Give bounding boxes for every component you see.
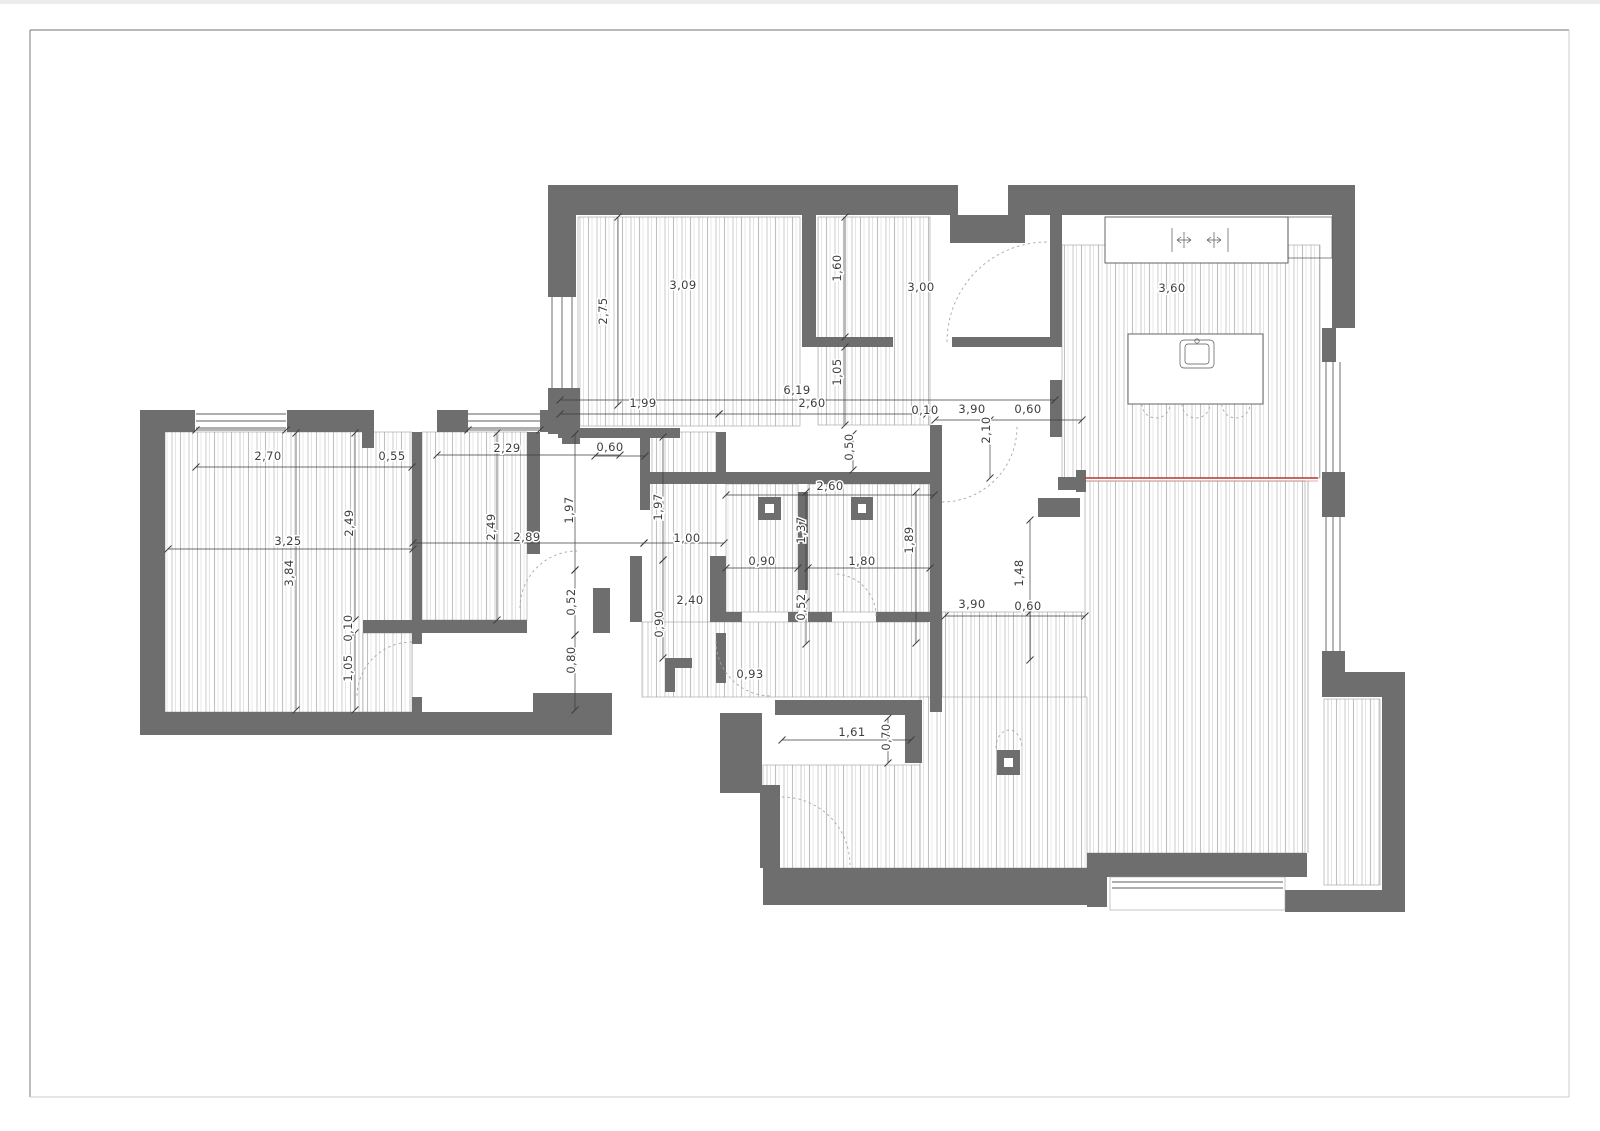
balcony-strip <box>1324 699 1380 885</box>
dimension-label: 3,90 <box>958 402 985 416</box>
dimension-label: 0,70 <box>879 723 893 750</box>
room-mid-left <box>422 432 527 620</box>
dimension-label: 3,09 <box>669 278 696 292</box>
dimension-label: 2,29 <box>493 441 520 455</box>
dimension-label: 1,37 <box>794 516 808 543</box>
dimension-label: 0,55 <box>378 449 405 463</box>
dimension-label: 0,60 <box>1014 402 1041 416</box>
dimension-label: 0,52 <box>564 588 578 615</box>
dimension-label: 1,05 <box>341 654 355 681</box>
dimension-label: 3,00 <box>907 280 934 294</box>
dimension-label: 2,49 <box>342 509 356 536</box>
window-right-lower <box>1326 517 1340 651</box>
dimension-label: 1,60 <box>830 254 844 281</box>
floor-hatch-layer <box>165 217 1380 885</box>
dimension-label: 0,50 <box>842 433 856 460</box>
hall-bottom <box>920 697 1087 868</box>
room-living <box>1085 481 1305 853</box>
dimension-label: 6,19 <box>783 383 810 397</box>
dimension-label: 0,90 <box>748 554 775 568</box>
dimension-label: 1,97 <box>562 496 576 523</box>
room-left-strip <box>363 633 412 712</box>
dimension-label: 0,10 <box>911 403 938 417</box>
vent-shaft <box>758 497 781 520</box>
dimension-label: 2,70 <box>254 449 281 463</box>
door-swing-arc <box>947 242 1047 342</box>
window-left-wing-2 <box>468 414 540 428</box>
dimension-label: 2,89 <box>513 530 540 544</box>
dimension-label: 0,10 <box>341 614 355 641</box>
dimension-label: 1,05 <box>830 358 844 385</box>
dimension-label: 3,84 <box>282 559 296 586</box>
dimension-label: 1,00 <box>673 531 700 545</box>
dimension-label: 0,90 <box>652 610 666 637</box>
dimension-label: 1,99 <box>629 396 656 410</box>
red-measure-line <box>1085 478 1318 481</box>
dimension-label: 3,25 <box>274 534 301 548</box>
window-right-upper <box>1326 362 1340 472</box>
window-left-wing-1 <box>196 414 286 428</box>
dimension-label: 1,48 <box>1012 559 1026 586</box>
dimension-label: 0,93 <box>736 667 763 681</box>
window-upper-left-wall <box>552 297 572 388</box>
room-upper-left <box>578 217 800 426</box>
dimension-label: 0,80 <box>564 646 578 673</box>
dimension-label: 0,52 <box>794 593 808 620</box>
page-top-edge <box>0 0 1600 4</box>
dimension-label: 2,60 <box>816 479 843 493</box>
dimension-label: 1,61 <box>838 725 865 739</box>
dimension-label: 0,60 <box>596 440 623 454</box>
dimension-label: 2,49 <box>484 513 498 540</box>
dimension-label: 1,80 <box>848 554 875 568</box>
floor-plan-canvas: 2,753,091,603,003,601,056,192,601,990,10… <box>0 0 1600 1131</box>
dimension-label: 2,60 <box>798 396 825 410</box>
dimension-label: 1,97 <box>651 493 665 520</box>
dimension-label: 2,75 <box>596 297 610 324</box>
dimension-label: 0,60 <box>1014 599 1041 613</box>
window-bottom-niche <box>1110 877 1285 910</box>
room-upper-middle <box>818 217 930 425</box>
dimension-label: 1,89 <box>902 526 916 553</box>
vent-shaft <box>851 497 873 520</box>
dimension-label: 3,90 <box>958 597 985 611</box>
dimension-label: 2,40 <box>676 593 703 607</box>
dimension-label: 3,60 <box>1158 281 1185 295</box>
dimension-label: 2,10 <box>979 416 993 443</box>
hall-lower <box>763 765 920 868</box>
